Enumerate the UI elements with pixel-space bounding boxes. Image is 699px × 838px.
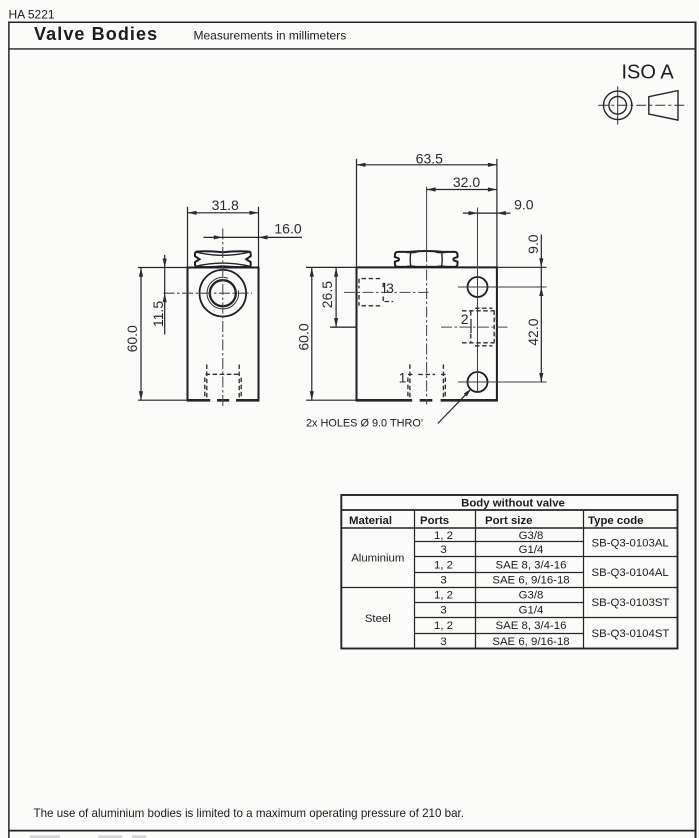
svg-text:1, 2: 1, 2 bbox=[434, 590, 453, 602]
svg-text:The use of aluminium bodies is: The use of aluminium bodies is limited t… bbox=[34, 807, 464, 820]
svg-text:Ports: Ports bbox=[420, 515, 449, 527]
svg-text:SB-Q3-0104ST: SB-Q3-0104ST bbox=[592, 628, 670, 640]
svg-text:SAE 8, 3/4-16: SAE 8, 3/4-16 bbox=[496, 620, 567, 632]
svg-text:3: 3 bbox=[386, 280, 394, 296]
svg-text:3: 3 bbox=[440, 544, 446, 556]
svg-text:26.5: 26.5 bbox=[319, 281, 335, 308]
svg-text:G3/8: G3/8 bbox=[519, 590, 544, 602]
svg-text:Type code: Type code bbox=[588, 515, 644, 527]
svg-text:9.0: 9.0 bbox=[525, 234, 541, 254]
svg-text:42.0: 42.0 bbox=[525, 318, 541, 345]
svg-text:Aluminium: Aluminium bbox=[351, 553, 404, 565]
svg-text:1, 2: 1, 2 bbox=[434, 620, 453, 632]
svg-text:HA 5221: HA 5221 bbox=[9, 8, 55, 22]
svg-text:2: 2 bbox=[461, 311, 469, 327]
svg-text:SAE 8, 3/4-16: SAE 8, 3/4-16 bbox=[496, 559, 567, 571]
svg-text:Body without valve: Body without valve bbox=[461, 498, 565, 510]
svg-text:32.0: 32.0 bbox=[453, 174, 480, 190]
svg-text:3: 3 bbox=[440, 605, 446, 617]
svg-text:G1/4: G1/4 bbox=[519, 605, 544, 617]
svg-text:1: 1 bbox=[399, 369, 407, 385]
svg-text:2x HOLES Ø 9.0 THRO’: 2x HOLES Ø 9.0 THRO’ bbox=[306, 417, 423, 429]
svg-text:Material: Material bbox=[349, 515, 392, 527]
svg-text:SAE 6, 9/16-18: SAE 6, 9/16-18 bbox=[492, 575, 569, 587]
svg-text:1, 2: 1, 2 bbox=[434, 530, 453, 542]
svg-text:SB-Q3-0104AL: SB-Q3-0104AL bbox=[592, 567, 669, 579]
svg-text:SB-Q3-0103ST: SB-Q3-0103ST bbox=[592, 597, 670, 609]
svg-text:60.0: 60.0 bbox=[296, 323, 312, 350]
svg-text:9.0: 9.0 bbox=[514, 197, 534, 213]
svg-text:Steel: Steel bbox=[365, 613, 391, 625]
svg-text:63.5: 63.5 bbox=[416, 150, 443, 166]
svg-text:Port size: Port size bbox=[485, 515, 532, 527]
svg-text:16.0: 16.0 bbox=[274, 221, 301, 237]
svg-text:Valve Bodies: Valve Bodies bbox=[34, 24, 158, 44]
svg-text:1, 2: 1, 2 bbox=[434, 559, 453, 571]
svg-text:Measurements in millimeters: Measurements in millimeters bbox=[194, 28, 347, 42]
svg-text:ISO A: ISO A bbox=[622, 61, 675, 83]
svg-text:G1/4: G1/4 bbox=[519, 544, 544, 556]
svg-text:3: 3 bbox=[440, 636, 446, 648]
svg-text:3: 3 bbox=[440, 575, 446, 587]
svg-text:G3/8: G3/8 bbox=[519, 530, 544, 542]
svg-text:31.8: 31.8 bbox=[212, 197, 239, 213]
svg-text:60.0: 60.0 bbox=[124, 325, 140, 352]
svg-text:11.5: 11.5 bbox=[150, 301, 166, 327]
svg-text:SB-Q3-0103AL: SB-Q3-0103AL bbox=[592, 537, 669, 549]
svg-text:SAE 6, 9/16-18: SAE 6, 9/16-18 bbox=[492, 636, 569, 648]
